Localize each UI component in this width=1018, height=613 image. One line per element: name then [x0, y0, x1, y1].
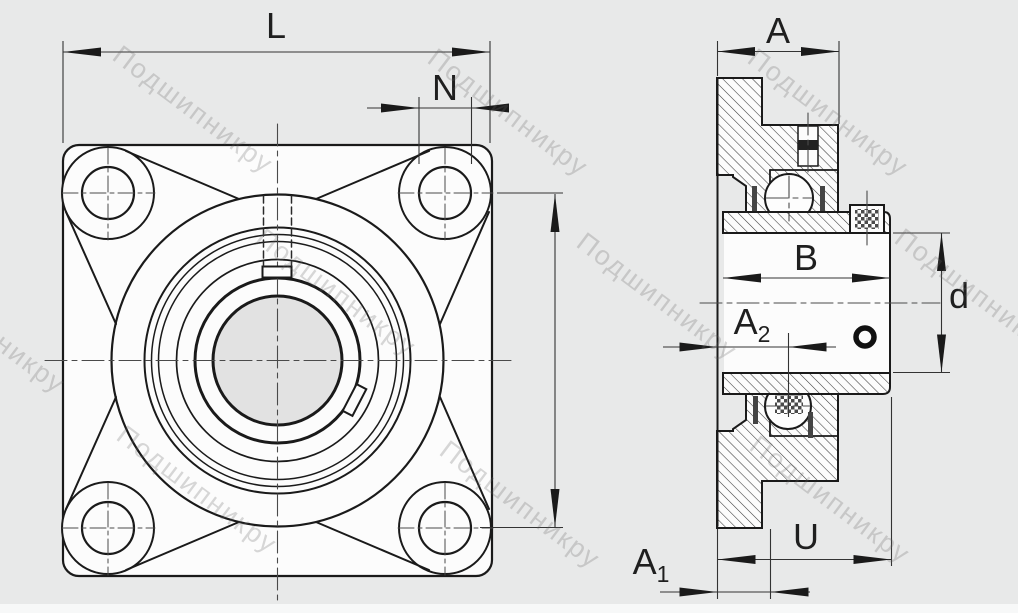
set-screw-hole-side	[856, 328, 874, 346]
dim-label-A2: A2	[734, 304, 771, 346]
dim-label-N: N	[432, 70, 458, 106]
sleeve-section-bottom	[723, 373, 890, 394]
technical-drawing-svg	[0, 0, 1018, 613]
drawing-canvas: L N A B d A2 A1 U Подшипникру Подшипникр…	[0, 0, 1018, 613]
dim-label-A: A	[766, 13, 790, 49]
front-view	[45, 124, 512, 600]
set-screw-notch-top	[263, 267, 292, 278]
dim-A1	[660, 529, 810, 599]
dim-L	[63, 41, 490, 143]
dim-label-U: U	[793, 519, 819, 555]
bottom-paper-strip	[0, 604, 1018, 613]
dim-label-L: L	[266, 8, 286, 44]
dim-label-B: B	[794, 240, 818, 276]
dim-label-d: d	[949, 278, 969, 314]
dim-label-A1: A1	[633, 544, 670, 586]
